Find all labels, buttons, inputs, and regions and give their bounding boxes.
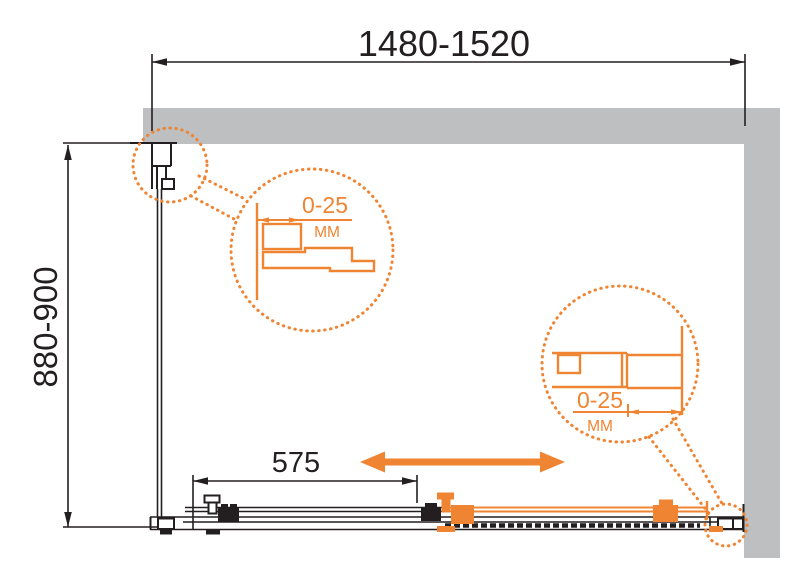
- door-roller-orange-right: [653, 500, 678, 523]
- door-roller-middle: [421, 503, 441, 521]
- corner-profile-left: [151, 517, 221, 535]
- slide-direction-arrow-icon: [360, 452, 565, 473]
- depth-dimension-label: 880-900: [27, 266, 64, 387]
- width-dimension-label: 1480-1520: [358, 23, 530, 64]
- callout-left-unit-label: ММ: [314, 224, 340, 241]
- detail-circle-right: [542, 286, 698, 442]
- side-panel-glass: [158, 189, 162, 517]
- door-roller-orange-left: [451, 505, 474, 524]
- shower-enclosure-installation-diagram: 1480-1520 880-900: [0, 0, 800, 576]
- door-width-label: 575: [272, 447, 320, 479]
- detail-callout-right: 0-25 ММ: [542, 286, 698, 442]
- depth-dimension: 880-900: [27, 143, 177, 527]
- detail-callout-left: 0-25 ММ: [231, 169, 393, 331]
- diagram-canvas: 1480-1520 880-900: [0, 0, 800, 576]
- callout-right-range-label: 0-25: [577, 387, 623, 413]
- wall-profile-foot: [162, 179, 174, 189]
- top-wall: [143, 108, 780, 144]
- sliding-door-fixed: [185, 496, 452, 523]
- callout-right-unit-label: ММ: [587, 418, 613, 435]
- callout-left-range-label: 0-25: [302, 192, 348, 218]
- walls: [143, 108, 780, 558]
- right-wall: [744, 108, 780, 558]
